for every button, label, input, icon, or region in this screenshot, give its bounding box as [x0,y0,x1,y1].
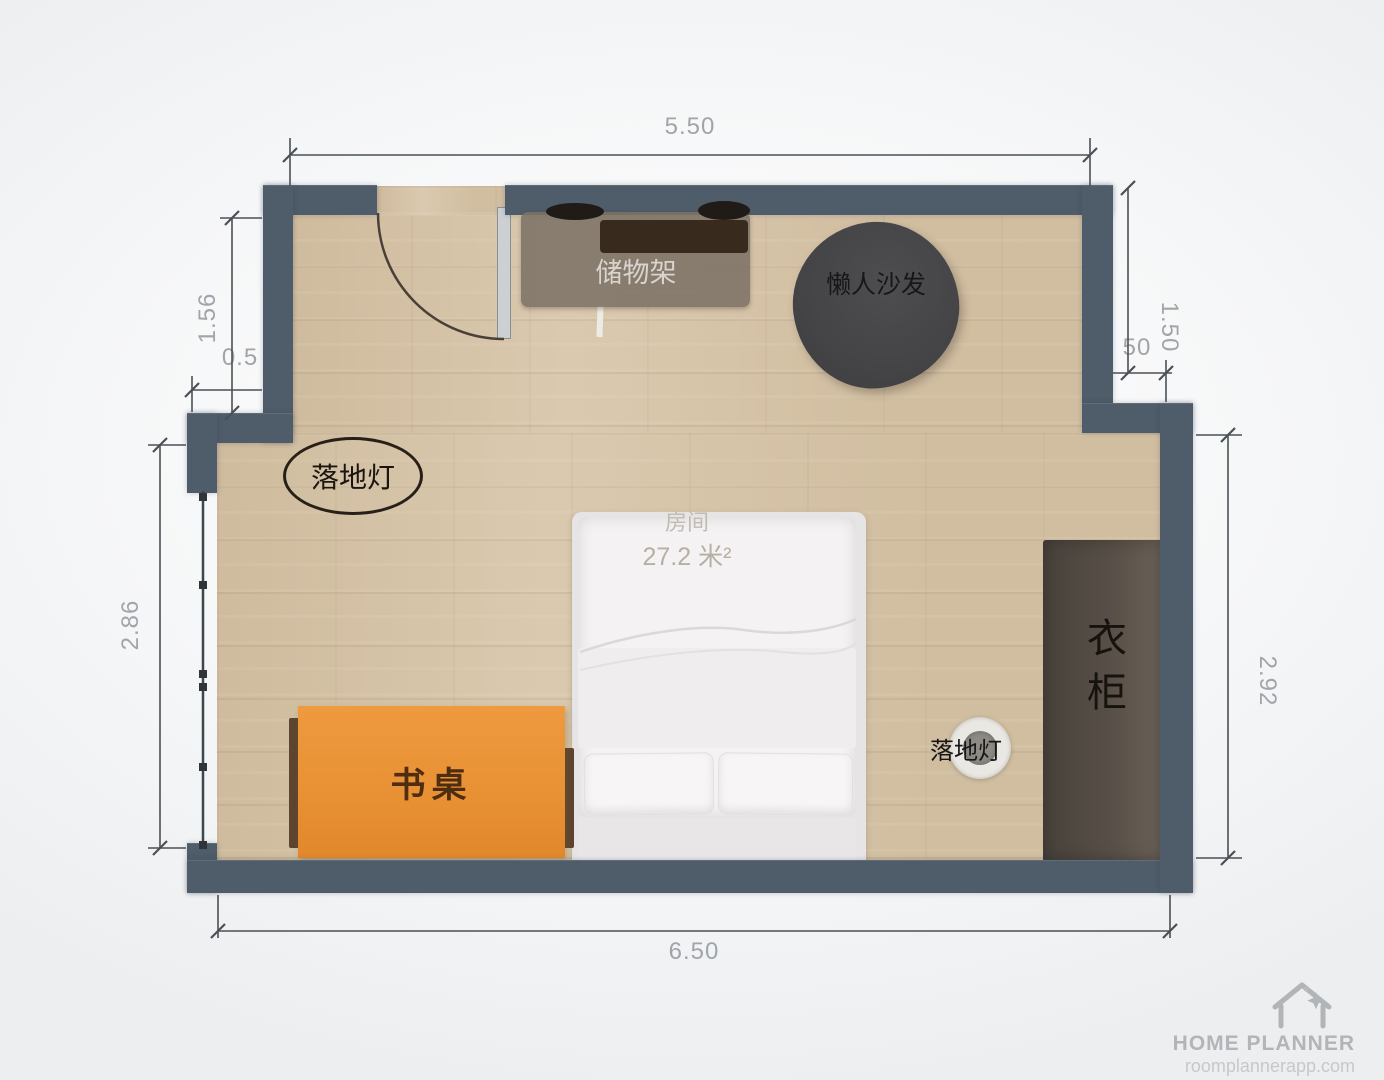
bed-pillow-right [718,752,854,815]
wall-left-stub-upper [187,413,217,493]
bed-blanket [578,648,856,748]
door-leaf[interactable] [497,207,511,339]
dimension-bottom: 6.50 [644,938,744,966]
wardrobe[interactable]: 衣柜 [1043,540,1163,862]
watermark-brand: HOME PLANNER [1100,1032,1355,1056]
dimension-left-lower: 2.86 [117,575,145,675]
room-area: 27.2 米² [617,540,757,570]
dimension-left-upper: 1.56 [194,268,222,368]
room-name: 房间 [627,508,747,534]
floor-plan-canvas: 书桌 衣柜 懒人沙发 落地灯 落地灯 储物架 [0,0,1384,1080]
window-line-left [199,491,207,849]
floor-lamp-left[interactable]: 落地灯 [283,437,423,515]
storage-shelf-edge-left [546,203,604,220]
wall-bottom [187,860,1193,893]
storage-shelf-top-box [600,220,748,253]
bed-footboard [578,818,856,865]
house-icon [1100,980,1355,1032]
wall-left-upper [263,185,293,443]
dimension-right-step: 50 [1114,334,1160,362]
storage-shelf-edge-right [698,201,750,220]
dimension-top: 5.50 [640,113,740,141]
watermark-url: roomplannerapp.com [1100,1056,1355,1077]
wall-right-upper [1082,185,1113,403]
floor-lamp-left-label: 落地灯 [311,456,395,496]
bean-bag-label: 懒人沙发 [806,268,946,298]
desk-label: 书桌 [390,757,472,808]
wall-right-lower [1160,403,1193,893]
storage-shelf-leg [596,305,603,337]
desk[interactable]: 书桌 [298,706,565,858]
storage-shelf-label: 储物架 [566,254,706,286]
dimension-right-upper: 1.50 [1155,277,1183,377]
floor-door-opening [377,186,505,215]
floor-lamp-right-label: 落地灯 [930,731,1002,766]
watermark: HOME PLANNER roomplannerapp.com [1100,980,1355,1077]
wardrobe-label: 衣柜 [1074,617,1132,725]
dimension-right-lower: 2.92 [1253,631,1281,731]
bed-pillow-left [584,752,715,815]
